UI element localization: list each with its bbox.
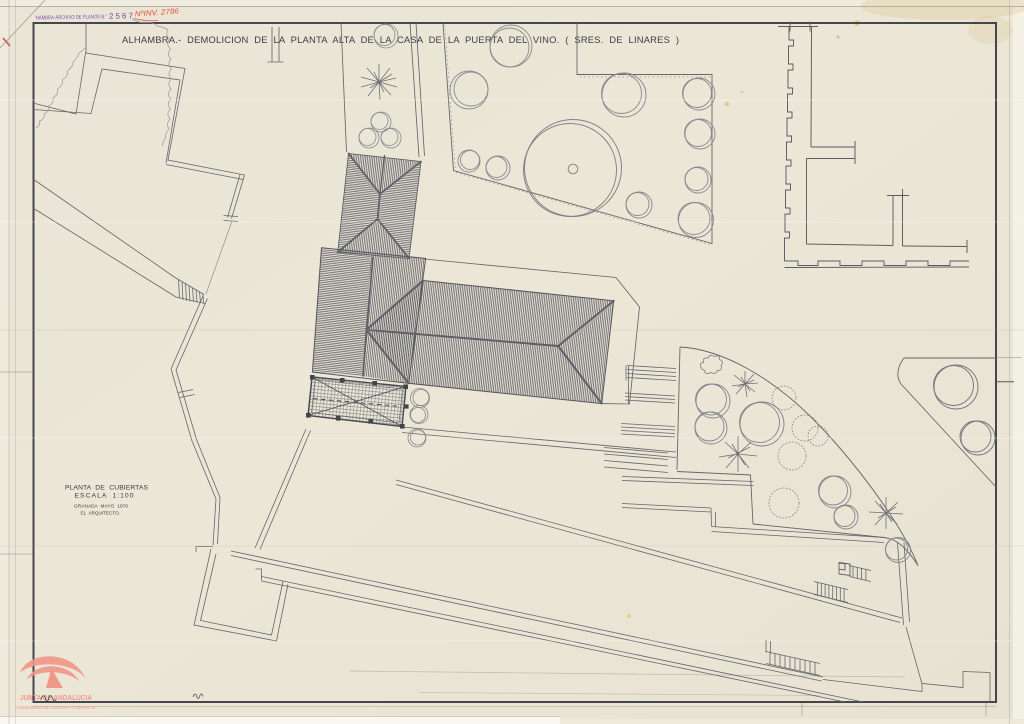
svg-text:ALHAMBRA.- DEMOLICION DE LA PL: ALHAMBRA.- DEMOLICION DE LA PLANTA ALTA …: [122, 34, 679, 45]
svg-text:'HAMBRA-ARCHIVO DE PLANOS N.°: 'HAMBRA-ARCHIVO DE PLANOS N.°: [35, 14, 107, 21]
svg-text:CONSEJERIA DE CULTURA Y DEPORT: CONSEJERIA DE CULTURA Y DEPORTE: [15, 705, 95, 710]
svg-text:GRANADA MAYO 1970: GRANADA MAYO 1970: [74, 504, 128, 509]
svg-text:EL ARQUITECTO.: EL ARQUITECTO.: [81, 511, 121, 516]
svg-text:2567: 2567: [109, 11, 134, 20]
svg-text:JUNTA DE ANDALUCIA: JUNTA DE ANDALUCIA: [20, 693, 92, 702]
svg-text:ESCALA 1:100: ESCALA 1:100: [75, 493, 134, 500]
svg-text:PLANTA DE CUBIERTAS: PLANTA DE CUBIERTAS: [65, 485, 148, 492]
